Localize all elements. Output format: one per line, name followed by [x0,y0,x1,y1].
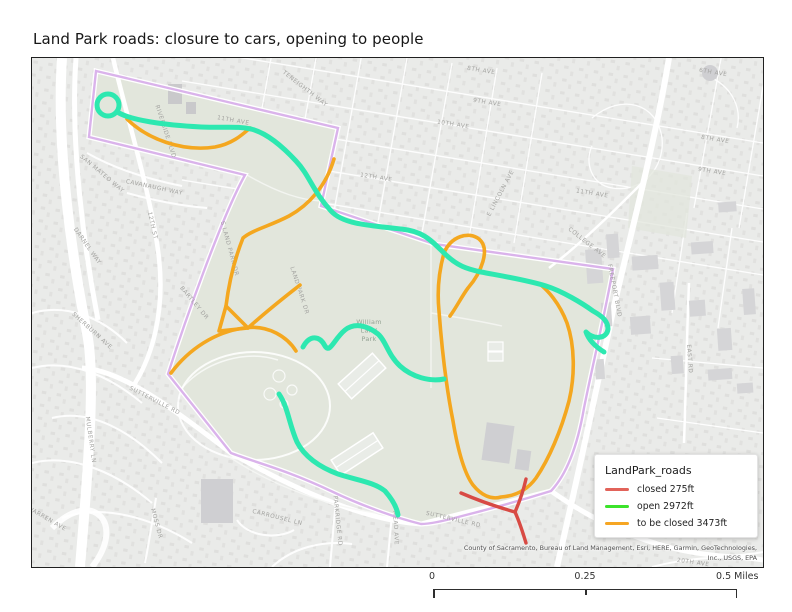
map-title: Land Park roads: closure to cars, openin… [33,30,424,48]
open-line-swatch [605,505,629,509]
scale-label-quarter: 0.25 [574,571,595,582]
legend: LandPark_roads closed 275ft open 2972ft … [594,454,758,538]
page: Land Park roads: closure to cars, openin… [0,0,792,612]
scale-tick-left [433,590,435,598]
map-canvas[interactable]: 8TH AVE6TH AVE8TH AVE9TH AVE9TH AVE10TH … [31,57,764,568]
legend-label-to-be-closed: to be closed 3473ft [637,518,727,529]
scale-bar-line [433,589,737,590]
legend-item-to-be-closed: to be closed 3473ft [605,518,747,529]
legend-item-closed: closed 275ft [605,484,747,495]
scale-tick-right [736,590,738,598]
scale-label-half-miles: 0.5 Miles [716,571,758,582]
to-be-closed-line-swatch [605,522,629,526]
legend-label-closed: closed 275ft [637,484,694,495]
scale-label-0: 0 [429,571,435,582]
scale-tick-middle [585,590,587,595]
map-attribution: County of Sacramento, Bureau of Land Man… [452,544,757,563]
legend-item-open: open 2972ft [605,501,747,512]
legend-label-open: open 2972ft [637,501,694,512]
legend-title: LandPark_roads [605,464,747,477]
closed-line-swatch [605,488,629,492]
